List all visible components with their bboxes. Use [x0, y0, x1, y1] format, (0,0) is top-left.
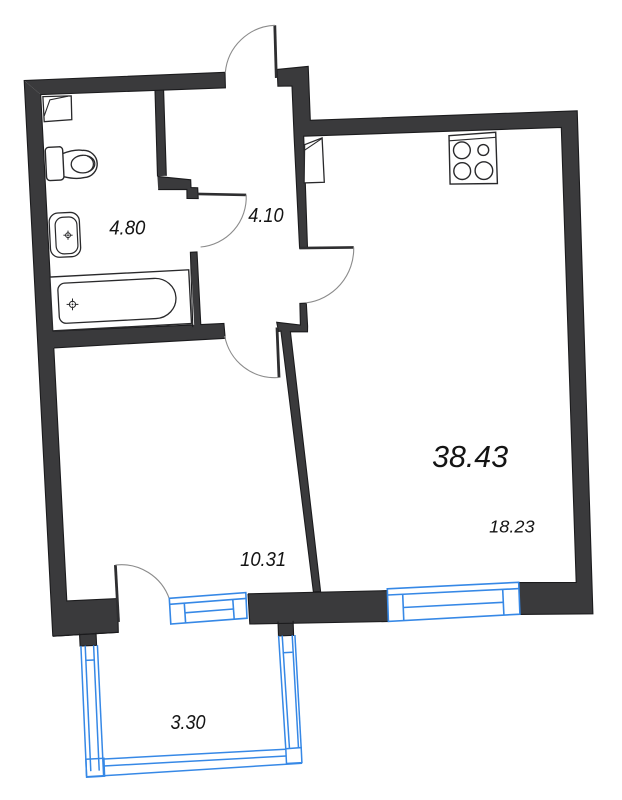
svg-text:10.31: 10.31 [240, 549, 286, 571]
svg-text:3.30: 3.30 [170, 712, 205, 734]
svg-text:38.43: 38.43 [432, 439, 508, 474]
svg-text:4.10: 4.10 [248, 205, 283, 227]
svg-text:4.80: 4.80 [109, 218, 145, 240]
svg-text:18.23: 18.23 [489, 517, 535, 537]
